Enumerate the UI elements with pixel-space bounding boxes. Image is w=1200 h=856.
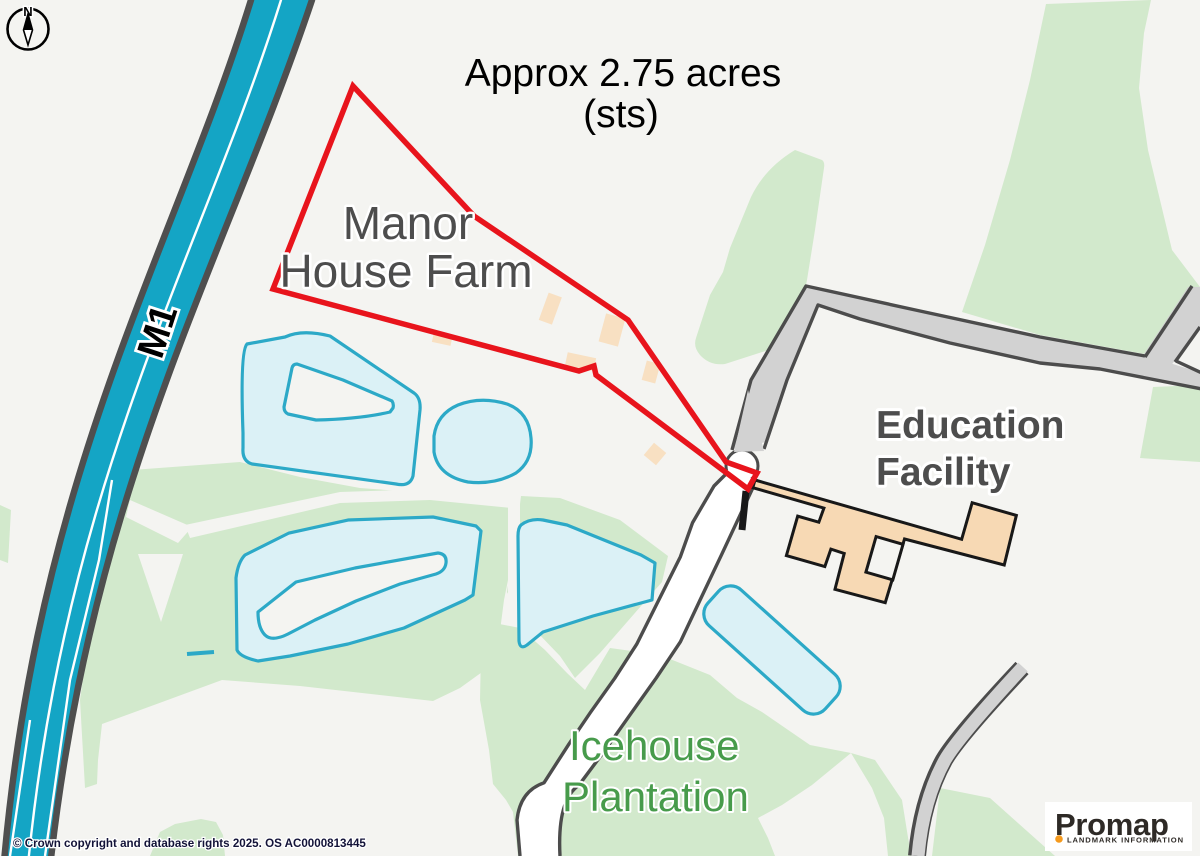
svg-text:House Farm: House Farm bbox=[279, 245, 532, 297]
svg-text:LANDMARK INFORMATION: LANDMARK INFORMATION bbox=[1067, 836, 1184, 845]
svg-text:© Crown copyright and database: © Crown copyright and database rights 20… bbox=[13, 837, 366, 850]
svg-text:(sts): (sts) bbox=[583, 93, 659, 136]
svg-text:Facility: Facility bbox=[876, 451, 1011, 494]
svg-text:Manor: Manor bbox=[343, 197, 473, 249]
svg-text:Approx 2.75 acres: Approx 2.75 acres bbox=[465, 52, 782, 95]
svg-text:Plantation: Plantation bbox=[562, 773, 749, 820]
svg-text:Education: Education bbox=[876, 404, 1065, 447]
svg-text:Icehouse: Icehouse bbox=[569, 722, 739, 769]
